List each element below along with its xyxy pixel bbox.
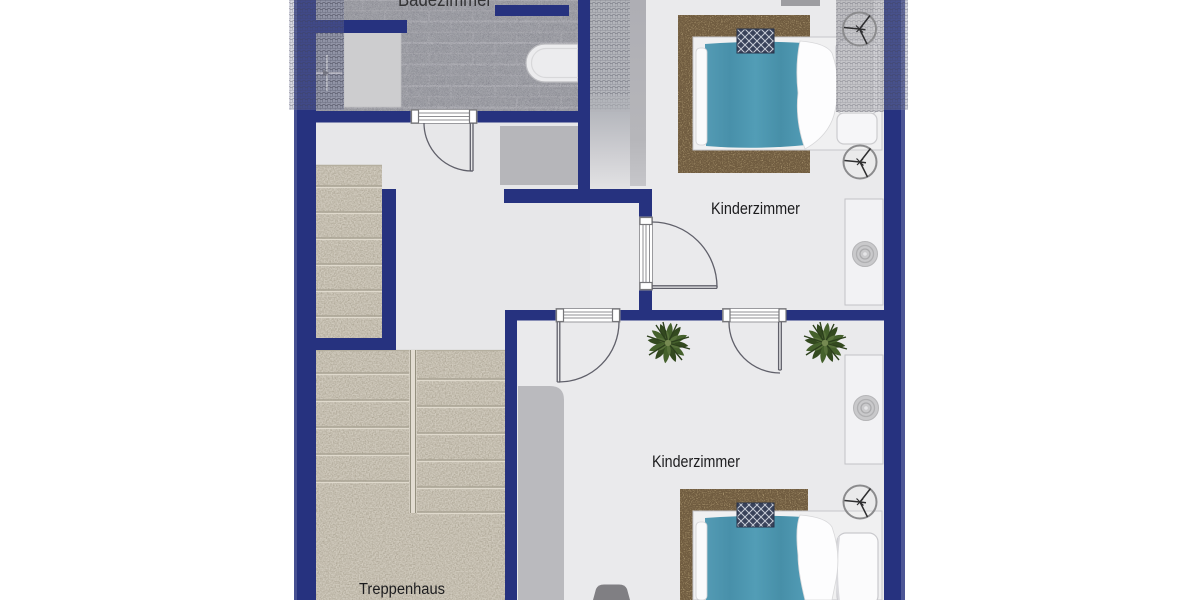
svg-text:Badezimmer: Badezimmer <box>398 0 493 11</box>
svg-text:Kinderzimmer: Kinderzimmer <box>711 200 800 218</box>
svg-text:Treppenhaus: Treppenhaus <box>359 581 445 598</box>
svg-text:Kinderzimmer: Kinderzimmer <box>652 453 740 471</box>
